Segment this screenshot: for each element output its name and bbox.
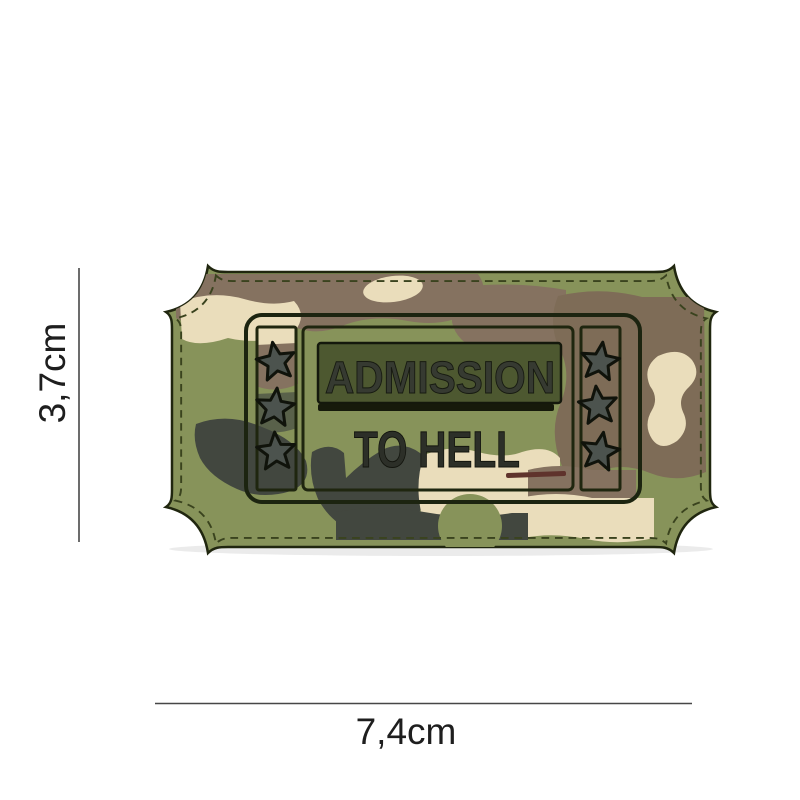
height-dimension-label: 3,7cm bbox=[32, 323, 73, 424]
camo-patch: ADMISSION TO HELL bbox=[166, 266, 716, 558]
width-dimension-label: 7,4cm bbox=[356, 711, 457, 752]
title-underline bbox=[318, 404, 554, 411]
patch-figure: 3,7cm 7,4cm bbox=[0, 0, 800, 800]
patch-title-line2: TO HELL bbox=[354, 421, 520, 478]
patch-title-line1: ADMISSION bbox=[325, 352, 555, 403]
width-dimension: 7,4cm bbox=[155, 704, 692, 753]
height-dimension: 3,7cm bbox=[32, 268, 79, 542]
product-photo: 3,7cm 7,4cm bbox=[0, 0, 800, 800]
